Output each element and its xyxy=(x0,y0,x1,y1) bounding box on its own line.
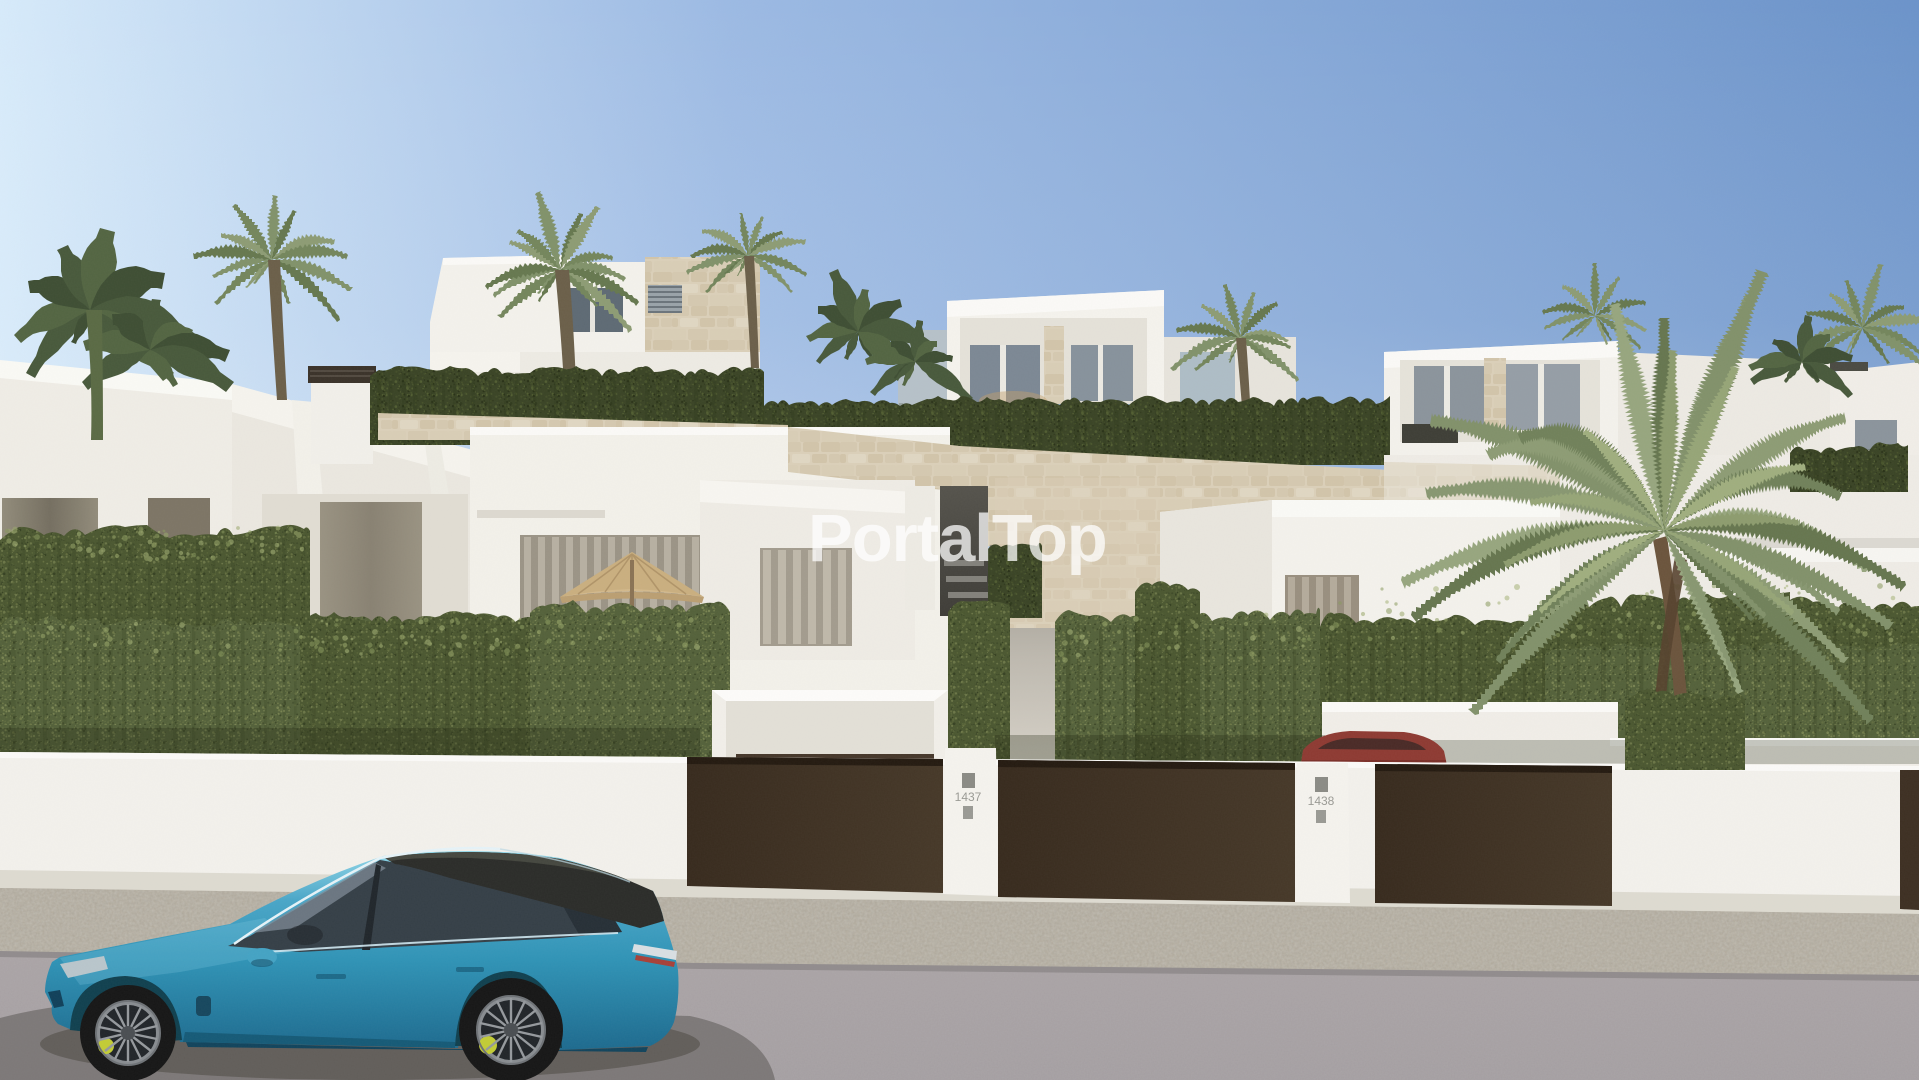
svg-text:PortalTop: PortalTop xyxy=(808,501,1107,576)
